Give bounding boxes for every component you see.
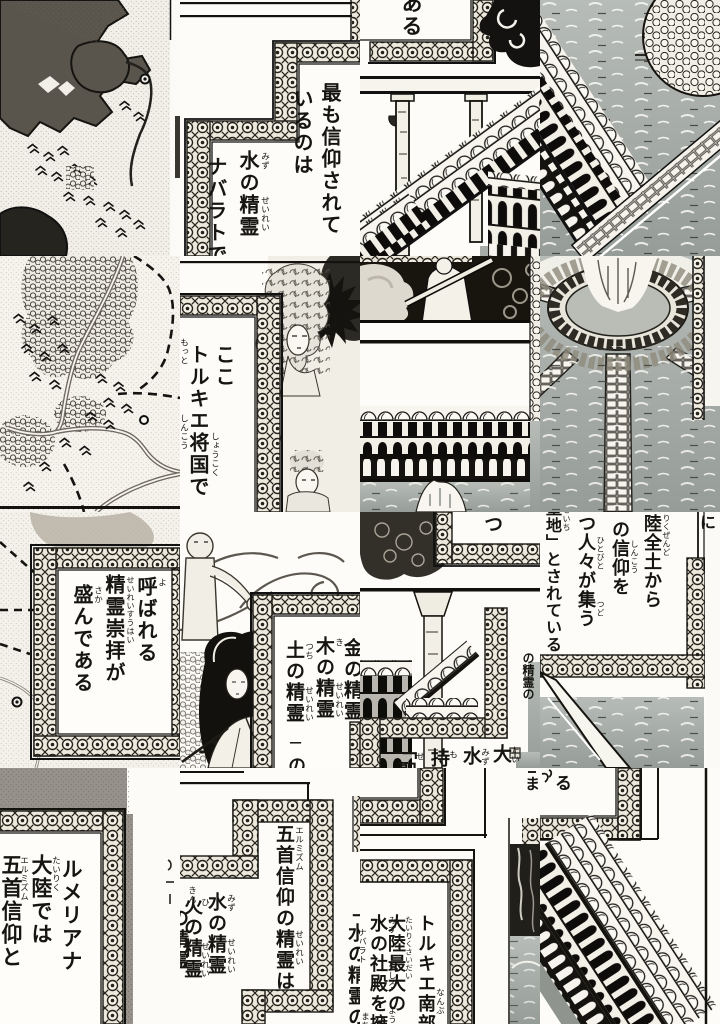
manga-page: 最も信仰されて いるのは 水の精霊 みず せいれい ナバラトで ある ここ トル… xyxy=(0,0,720,1024)
tile-holy-land xyxy=(540,512,720,768)
speech-box xyxy=(251,593,360,768)
tile-map-coast xyxy=(0,0,180,256)
tile-speech-navarato xyxy=(180,0,360,256)
tile-map-speech xyxy=(0,512,180,768)
tile-map-forest xyxy=(0,256,180,512)
long-colonnade xyxy=(360,406,530,482)
tile-pillar-frame xyxy=(359,512,540,768)
page-artwork xyxy=(0,0,720,1024)
speech-box xyxy=(31,545,180,759)
tile-elmism-spirits xyxy=(160,768,360,1024)
speech-box xyxy=(0,809,125,1024)
tile-figure-colonnade xyxy=(360,256,540,512)
arcade-right xyxy=(488,171,540,264)
tile-speech-torkie xyxy=(180,256,366,512)
tile-fountain xyxy=(528,248,720,512)
edge-art-strip xyxy=(509,818,540,1024)
beam xyxy=(360,76,540,94)
field-mark xyxy=(510,748,520,758)
tile-rumeliana xyxy=(0,768,180,1024)
figure-panel xyxy=(360,256,540,323)
tile-spirits-art xyxy=(180,512,360,768)
tile-torkie-south xyxy=(360,768,540,1024)
speech-box xyxy=(360,850,474,1024)
speech-bubble-tsu xyxy=(434,512,540,566)
map-trees xyxy=(66,166,94,190)
